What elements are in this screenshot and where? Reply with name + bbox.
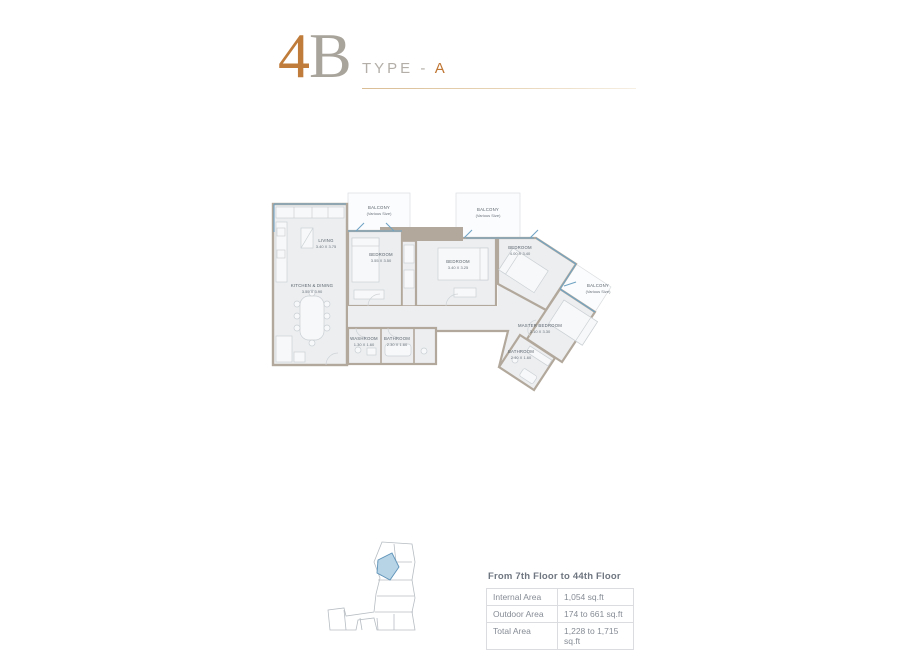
label-bedroom1-dims: 3.55 X 3.50 <box>371 258 392 263</box>
type-value: A <box>435 60 448 77</box>
unit-code: 4B <box>278 20 351 91</box>
building-outline <box>328 542 415 630</box>
area-row-label: Outdoor Area <box>487 606 558 622</box>
area-row-label: Internal Area <box>487 589 558 605</box>
label-bathroom-main-dims: 2.40 X 1.60 <box>511 355 532 360</box>
label-washroom-dims: 1.30 X 1.60 <box>354 342 375 347</box>
balcony-top-right: BALCONY (Various Size) <box>456 193 520 238</box>
title-block: 4B <box>278 24 351 88</box>
area-table: Internal Area 1,054 sq.ft Outdoor Area 1… <box>486 588 634 650</box>
label-living-dims: 3.40 X 3.75 <box>316 244 337 249</box>
balcony3-label: BALCONY <box>587 283 609 288</box>
floor-plan-svg: BALCONY (Various Size) BALCONY (Various … <box>268 188 638 403</box>
table-row: Outdoor Area 174 to 661 sq.ft <box>487 606 633 623</box>
label-bedroom3-dims: 4.00 X 3.40 <box>510 251 531 256</box>
label-bedroom2: BEDROOM <box>446 259 470 264</box>
key-plan-svg <box>322 538 437 640</box>
label-kitchen-dims: 3.55 X 3.90 <box>302 289 323 294</box>
balcony1-sub: (Various Size) <box>367 211 392 216</box>
label-bathroom2-dims: 2.30 X 1.60 <box>387 342 408 347</box>
label-bedroom3: BEDROOM <box>508 245 532 250</box>
floor-plan: BALCONY (Various Size) BALCONY (Various … <box>268 188 638 403</box>
balcony2-sub: (Various Size) <box>476 213 501 218</box>
label-living: LIVING <box>318 238 334 243</box>
table-row: Internal Area 1,054 sq.ft <box>487 589 633 606</box>
key-plan <box>322 538 437 640</box>
label-bathroom2: BATHROOM <box>384 336 410 341</box>
balcony-top-left: BALCONY (Various Size) <box>348 193 410 231</box>
type-label: TYPE - A <box>362 60 448 77</box>
label-washroom: WASHROOM <box>350 336 378 341</box>
label-bathroom-main: BATHROOM <box>508 349 534 354</box>
wall-block-central <box>402 227 463 241</box>
floors-range-label: From 7th Floor to 44th Floor <box>488 571 634 582</box>
area-row-value: 1,228 to 1,715 sq.ft <box>558 623 633 649</box>
area-row-value: 1,054 sq.ft <box>558 589 633 605</box>
info-block: From 7th Floor to 44th Floor Internal Ar… <box>486 571 634 650</box>
label-master: MASTER BEDROOM <box>518 323 562 328</box>
unit-code-number: 4 <box>278 20 309 91</box>
area-row-value: 174 to 661 sq.ft <box>558 606 633 622</box>
label-bedroom2-dims: 3.40 X 3.25 <box>448 265 469 270</box>
balcony1-label: BALCONY <box>368 205 390 210</box>
label-bedroom1: BEDROOM <box>369 252 393 257</box>
table-row: Total Area 1,228 to 1,715 sq.ft <box>487 623 633 649</box>
title-underline <box>362 88 636 89</box>
label-master-dims: 3.10 X 3.30 <box>530 329 551 334</box>
balcony3-sub: (Various Size) <box>586 289 611 294</box>
floorplan-page: 4B TYPE - A BALCONY (Various Size) BALCO… <box>0 0 915 655</box>
unit-code-letter: B <box>309 20 351 91</box>
label-kitchen: KITCHEN & DINING <box>291 283 334 288</box>
type-prefix: TYPE - <box>362 60 435 77</box>
balcony2-label: BALCONY <box>477 207 499 212</box>
area-row-label: Total Area <box>487 623 558 649</box>
